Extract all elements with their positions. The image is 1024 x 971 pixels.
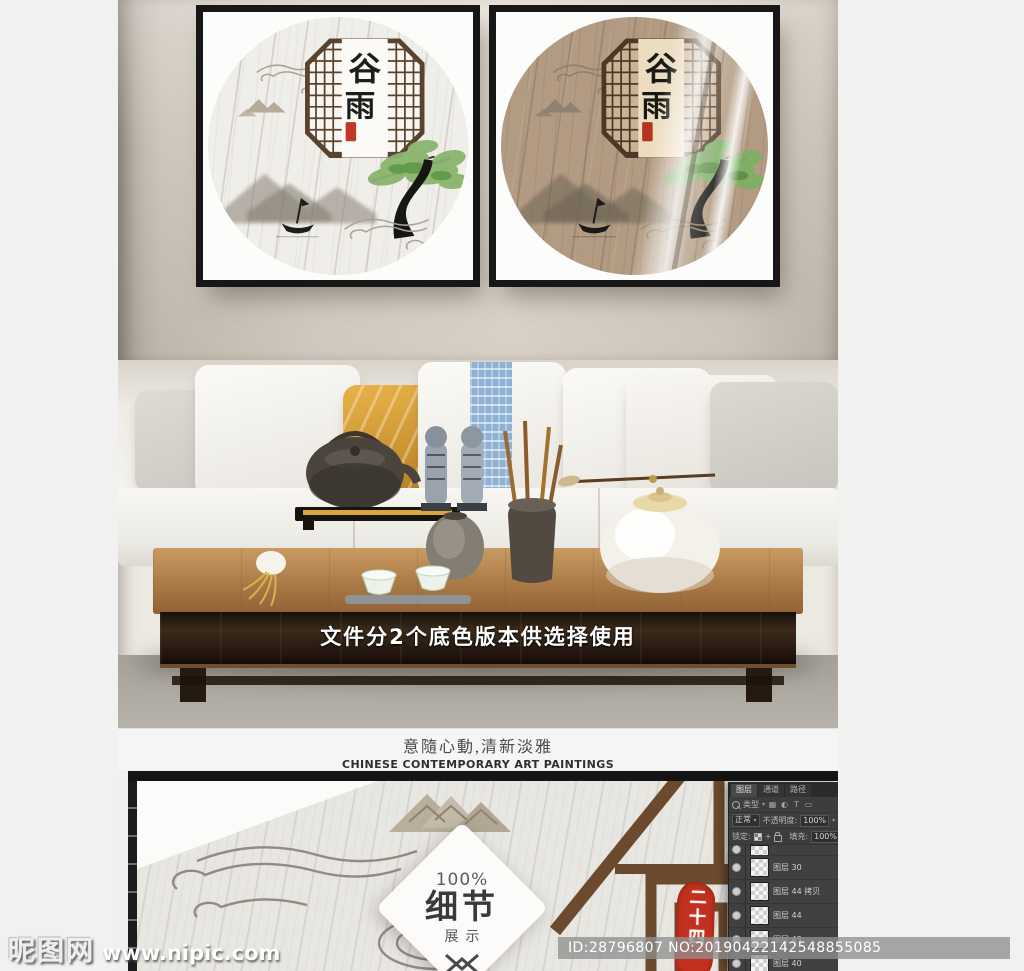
- wall-section: [118, 0, 838, 360]
- layer-thumbnail: [750, 858, 769, 877]
- layer-row[interactable]: 图层 44: [729, 904, 838, 928]
- lock-position-icon[interactable]: +: [765, 834, 772, 840]
- tab-paths[interactable]: 路径: [785, 784, 811, 797]
- eye-icon[interactable]: [732, 887, 741, 896]
- tab-layers[interactable]: 图层: [731, 784, 757, 797]
- shape-filter-icon[interactable]: ▭: [804, 800, 813, 809]
- product-banner: 文件分2个底色版本供选择使用: [118, 0, 838, 971]
- canvas-top-border: [128, 771, 838, 781]
- layer-thumbnail: [750, 845, 769, 856]
- blend-mode-select[interactable]: 正常 ▾: [732, 814, 760, 827]
- fill-label: 填充:: [789, 831, 808, 842]
- white-jar: [600, 487, 720, 593]
- layer-name: 图层 40: [773, 958, 802, 969]
- layer-row[interactable]: 图层 30: [729, 856, 838, 880]
- product-page: 文件分2个底色版本供选择使用: [0, 0, 1024, 971]
- badge-subtitle: 展示: [438, 926, 487, 946]
- lock-row: 锁定: + 填充: 100% ▾: [729, 829, 838, 845]
- opacity-label: 不透明度:: [763, 815, 798, 826]
- guyu-painting-light: [208, 17, 468, 275]
- eye-icon[interactable]: [732, 863, 741, 872]
- mountain-triangles: [387, 784, 512, 836]
- stone-lions: [421, 426, 487, 511]
- lock-label: 锁定:: [732, 831, 751, 842]
- detail-badge-content: 100% 细节 展示: [401, 847, 523, 969]
- artwork-disc-tan: [501, 17, 768, 275]
- framed-artwork-tan: [489, 5, 780, 287]
- intro-title-cn: 意隨心動,清新淡雅: [118, 733, 838, 757]
- site-url: www.nipic.com: [102, 941, 280, 965]
- image-id-watermark: ID:28796807 NO:20190422142548855085: [558, 937, 1010, 959]
- framed-artwork-light: [196, 5, 480, 287]
- site-name: 昵图网: [8, 929, 95, 968]
- adjustment-filter-icon[interactable]: ◐: [780, 800, 789, 809]
- search-icon: [732, 801, 740, 809]
- fill-value[interactable]: 100%: [811, 831, 838, 843]
- double-chevron-icon: [442, 953, 482, 971]
- filter-label[interactable]: 类型: [743, 799, 759, 810]
- layer-thumbnail: [750, 882, 769, 901]
- type-filter-icon[interactable]: T: [792, 800, 801, 809]
- tassel: [243, 551, 286, 606]
- room-scene-section: 文件分2个底色版本供选择使用: [118, 360, 838, 728]
- table-shelf: [172, 676, 784, 685]
- version-caption: 文件分2个底色版本供选择使用: [160, 612, 796, 662]
- site-watermark: 昵图网 www.nipic.com: [8, 929, 280, 968]
- intro-band: 意隨心動,清新淡雅 CHINESE CONTEMPORARY ART PAINT…: [118, 728, 838, 771]
- eye-icon[interactable]: [732, 911, 741, 920]
- layer-row-clipped[interactable]: [729, 845, 838, 856]
- ruyi-stick: [557, 474, 715, 488]
- panel-tab-bar: 图层 通道 路径: [729, 782, 838, 797]
- eye-icon[interactable]: [732, 845, 741, 854]
- layer-name: 图层 44: [773, 910, 802, 921]
- layer-name: 图层 44 拷贝: [773, 886, 820, 897]
- lock-all-icon[interactable]: [774, 835, 782, 842]
- layer-name: 图层 30: [773, 862, 802, 873]
- layer-row[interactable]: 图层 44 拷贝: [729, 880, 838, 904]
- artwork-disc-light: [208, 17, 468, 275]
- coffee-table-front: 文件分2个底色版本供选择使用: [160, 612, 796, 668]
- eye-icon[interactable]: [732, 959, 741, 968]
- teapot: [306, 433, 421, 509]
- tea-set: [153, 415, 803, 615]
- tab-channels[interactable]: 通道: [758, 784, 784, 797]
- filter-row: 类型 ▾ ▦ ◐ T ▭: [729, 797, 838, 813]
- chevron-down-icon: ▾: [762, 801, 765, 808]
- pixel-filter-icon[interactable]: ▦: [768, 800, 777, 809]
- opacity-value[interactable]: 100%: [800, 815, 829, 827]
- lock-transparent-icon[interactable]: [754, 833, 762, 841]
- chevron-down-icon: ▾: [832, 817, 835, 824]
- badge-title: 细节: [425, 890, 499, 925]
- brush-pot: [505, 421, 561, 583]
- blend-row: 正常 ▾ 不透明度: 100% ▾: [729, 813, 838, 829]
- layer-thumbnail: [750, 906, 769, 925]
